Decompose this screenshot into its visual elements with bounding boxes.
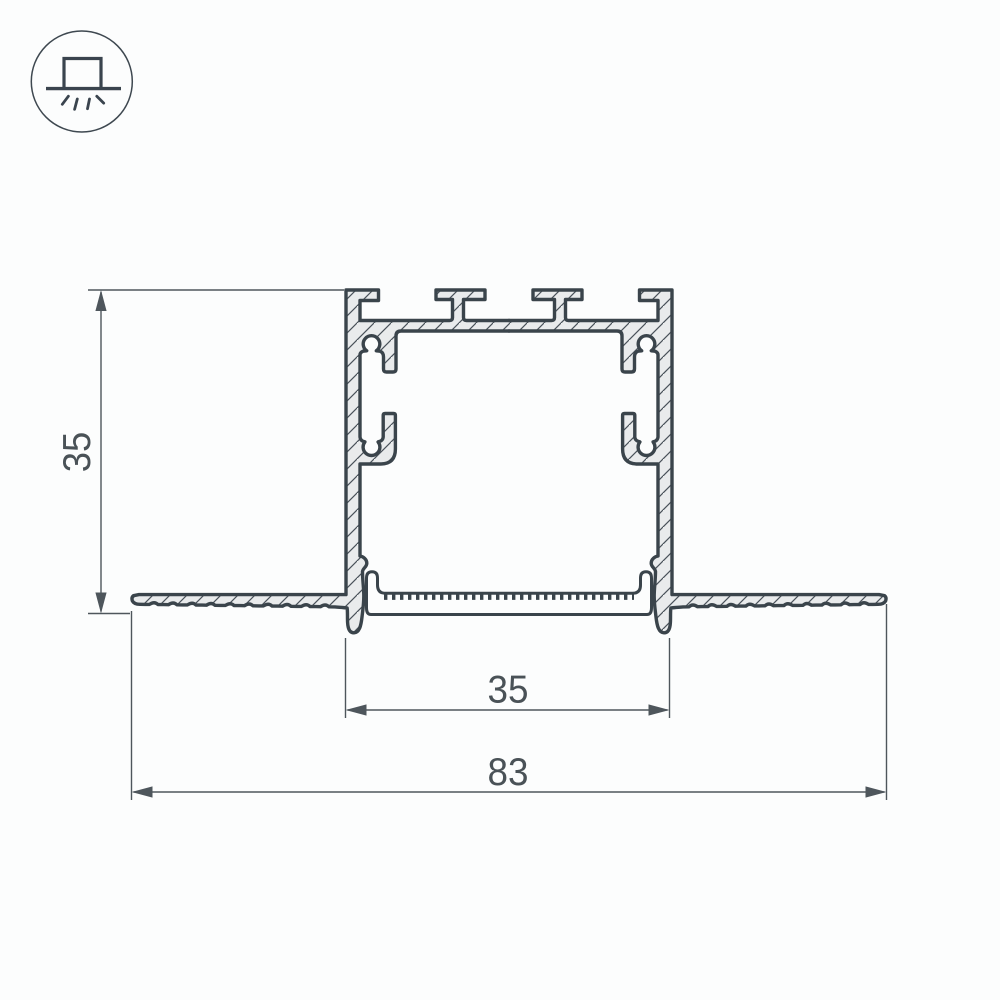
svg-text:35: 35 (488, 669, 529, 712)
svg-text:83: 83 (488, 751, 529, 794)
svg-text:35: 35 (56, 432, 99, 473)
